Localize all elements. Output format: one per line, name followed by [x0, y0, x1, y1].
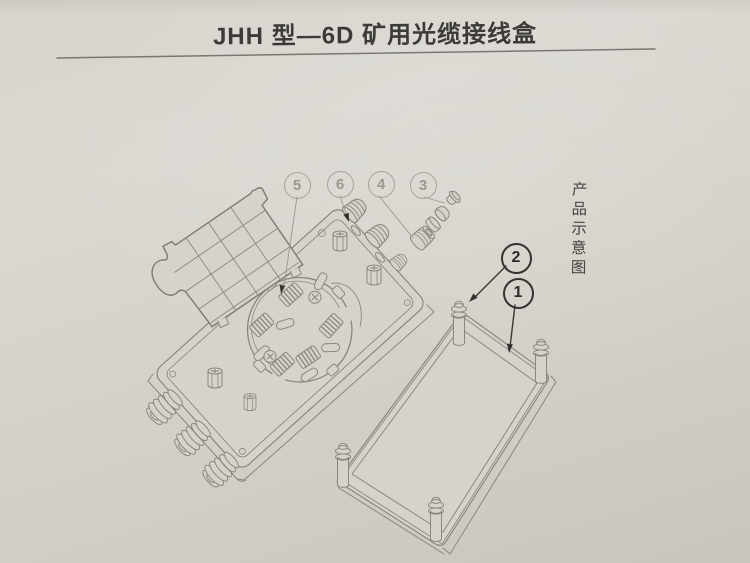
- callout-6-label: 6: [336, 177, 344, 192]
- entry-cap: [444, 189, 463, 208]
- callout-2-label: 2: [512, 250, 521, 266]
- callout-1-label: 1: [514, 285, 523, 301]
- callout-1: 1: [503, 278, 534, 309]
- callout-3: 3: [410, 172, 437, 199]
- callout-5-label: 5: [293, 178, 301, 193]
- exploded-diagram: [0, 0, 750, 563]
- callout-4-label: 4: [377, 177, 385, 192]
- callout-6: 6: [327, 171, 354, 198]
- title-underline: [57, 49, 655, 58]
- callout-3-label: 3: [419, 178, 427, 193]
- callout-5: 5: [284, 172, 311, 199]
- callout-4: 4: [368, 171, 395, 198]
- callout-2: 2: [501, 243, 532, 274]
- photographed-page: JHH 型—6D 矿用光缆接线盒 产品示意图: [0, 0, 750, 563]
